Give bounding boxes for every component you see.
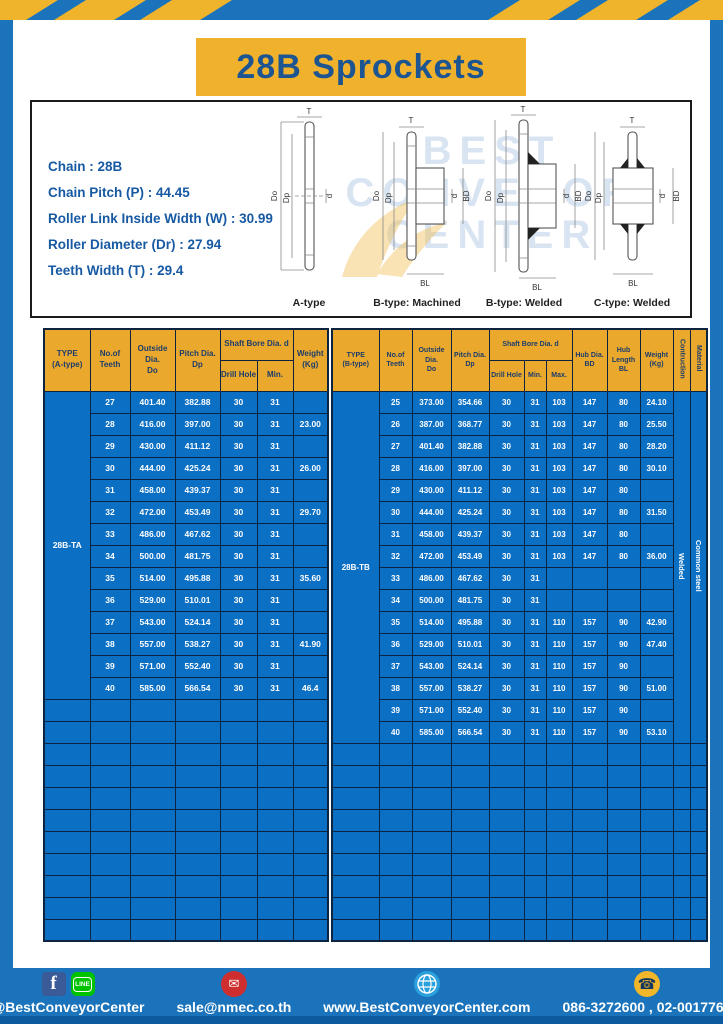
dim-dp: Dp [594,192,603,203]
cell: 30 [220,413,257,435]
dim-bd: BD [672,190,681,201]
cell: 28.20 [640,435,673,457]
empty-cell [640,765,673,787]
empty-cell [44,853,90,875]
empty-cell [332,787,379,809]
empty-cell [293,919,328,941]
cell: 557.00 [412,677,451,699]
empty-cell [379,765,412,787]
cell [293,545,328,567]
cell: 31 [257,655,293,677]
cell: 28 [90,413,130,435]
empty-cell [130,897,175,919]
empty-cell [293,765,328,787]
empty-cell [524,853,546,875]
cell: 26 [379,413,412,435]
empty-cell [44,919,90,941]
empty-cell [640,809,673,831]
cell: 30 [379,501,412,523]
empty-cell [607,743,640,765]
empty-cell [293,699,328,721]
dim-dp: Dp [496,192,505,203]
empty-cell [546,897,572,919]
cell: 585.00 [412,721,451,743]
cell: 439.37 [451,523,489,545]
cell: 157 [572,611,607,633]
cell: 53.10 [640,721,673,743]
page-title: 28B Sprockets [236,48,485,87]
cell: 411.12 [175,435,220,457]
dim-do: Do [372,190,381,201]
empty-cell [572,919,607,941]
col-header-material: Material [690,329,707,391]
empty-cell [524,787,546,809]
empty-cell [489,919,524,941]
cell [640,589,673,611]
cell: 411.12 [451,479,489,501]
social-handle: @BestConveyorCenter [0,999,144,1015]
empty-cell [44,743,90,765]
col-header-weight: Weight (Kg) [293,329,328,391]
cell: 557.00 [130,633,175,655]
table-b-header: TYPE (B-type) No.of Teeth Outside Dia. D… [332,329,707,391]
cell: 31 [524,523,546,545]
cell: 147 [572,435,607,457]
empty-cell [412,919,451,941]
col-header-teeth: No.of Teeth [90,329,130,391]
empty-cell [130,831,175,853]
empty-cell [524,897,546,919]
col-header-max: Max. [546,360,572,391]
col-header-pitch-dia: Pitch Dia. Dp [175,329,220,391]
empty-cell [607,787,640,809]
empty-cell [293,831,328,853]
empty-cell [257,699,293,721]
cell: 30 [90,457,130,479]
cell: 30 [489,633,524,655]
cell: 147 [572,479,607,501]
cell: 39 [90,655,130,677]
cell: 30 [220,479,257,501]
cell: 38 [90,633,130,655]
empty-cell [130,809,175,831]
empty-row [44,875,328,897]
empty-cell [293,853,328,875]
cell: 514.00 [412,611,451,633]
empty-cell [90,787,130,809]
cell: 538.27 [451,677,489,699]
empty-cell [546,809,572,831]
website-url: www.BestConveyorCenter.com [323,999,530,1015]
empty-row [44,765,328,787]
cell: 444.00 [130,457,175,479]
cell: 157 [572,699,607,721]
empty-cell [690,743,707,765]
cell: 34 [90,545,130,567]
empty-cell [451,919,489,941]
col-header-outside-dia: Outside Dia. Do [130,329,175,391]
cell: 30 [489,721,524,743]
table-row: 29430.00411.12303110314780 [332,479,707,501]
cell: 31 [90,479,130,501]
empty-cell [524,919,546,941]
cell [640,523,673,545]
cell: 430.00 [412,479,451,501]
cell: 571.00 [130,655,175,677]
spec-teeth-width: Teeth Width (T) : 29.4 [48,258,273,284]
cell: 31 [524,567,546,589]
page-content: 28B Sprockets BEST CONVEYOR CENTER Chain… [13,20,710,968]
empty-cell [524,809,546,831]
cell: 103 [546,545,572,567]
empty-cell [257,721,293,743]
cell: 103 [546,523,572,545]
cell: 40 [379,721,412,743]
cell [572,567,607,589]
empty-cell [690,875,707,897]
empty-cell [175,875,220,897]
cell: 147 [572,457,607,479]
cell [293,611,328,633]
empty-cell [175,743,220,765]
empty-row [44,743,328,765]
empty-cell [257,897,293,919]
cell: 31 [524,611,546,633]
email-address: sale@nmec.co.th [176,999,291,1015]
empty-cell [379,875,412,897]
footer-bottom-strip [0,1016,723,1024]
empty-cell [489,897,524,919]
cell: 552.40 [451,699,489,721]
empty-cell [412,831,451,853]
empty-cell [332,765,379,787]
dim-dp: Dp [384,192,393,203]
cell: 453.49 [175,501,220,523]
spec-drawing-box: BEST CONVEYOR CENTER Chain : 28B Chain P… [30,100,692,318]
cell: 23.00 [293,413,328,435]
empty-cell [379,853,412,875]
dim-d: d [562,194,571,198]
drawing-a-type: T Do Dp d A-type [270,107,334,309]
empty-cell [293,809,328,831]
empty-cell [332,853,379,875]
cell: 529.00 [412,633,451,655]
cell: 495.88 [451,611,489,633]
caption-a-type: A-type [293,297,326,309]
cell: 80 [607,501,640,523]
cell: 33 [379,567,412,589]
empty-cell [690,787,707,809]
dim-do: Do [484,190,493,201]
cell: 510.01 [451,633,489,655]
empty-cell [332,897,379,919]
cell: 458.00 [130,479,175,501]
cell [640,655,673,677]
table-row: 31458.00439.37303110314780 [332,523,707,545]
table-row: 39571.00552.40303111015790 [332,699,707,721]
cell: 80 [607,413,640,435]
empty-cell [489,809,524,831]
empty-cell [572,743,607,765]
cell: 31 [524,721,546,743]
empty-cell [44,787,90,809]
cell: 90 [607,677,640,699]
empty-cell [451,853,489,875]
cell [546,567,572,589]
cell [293,391,328,413]
cell: 397.00 [175,413,220,435]
empty-cell [673,875,690,897]
footer-phone: ☎ 086-3272600 , 02-0017766 [557,969,723,1015]
empty-cell [690,765,707,787]
cell: 30 [220,545,257,567]
cell [640,479,673,501]
dim-t: T [630,116,635,125]
empty-cell [690,853,707,875]
cell: 110 [546,611,572,633]
cell: 543.00 [130,611,175,633]
empty-cell [293,897,328,919]
empty-cell [607,875,640,897]
empty-cell [90,809,130,831]
cell: 157 [572,677,607,699]
col-header-shaft-bore: Shaft Bore Dia. d [220,329,293,360]
sprocket-drawings: T Do Dp d A-type T [247,106,687,312]
empty-cell [130,765,175,787]
empty-cell [673,897,690,919]
empty-cell [90,699,130,721]
empty-cell [220,787,257,809]
empty-cell [412,743,451,765]
empty-cell [607,853,640,875]
cell [640,567,673,589]
facebook-icon: f [42,972,66,996]
empty-cell [379,787,412,809]
empty-cell [640,831,673,853]
cell: 29.70 [293,501,328,523]
cell [640,699,673,721]
table-row: 28416.00397.0030311031478030.10 [332,457,707,479]
col-header-construction: Contruction [673,329,690,391]
cell: 30 [489,501,524,523]
cell: 458.00 [412,523,451,545]
cell: 157 [572,721,607,743]
cell: 585.00 [130,677,175,699]
col-header-teeth: No.of Teeth [379,329,412,391]
empty-cell [130,853,175,875]
empty-cell [451,743,489,765]
empty-cell [379,831,412,853]
table-row: 30444.00425.2430311031478031.50 [332,501,707,523]
empty-cell [412,853,451,875]
table-row: 35514.00495.8830311101579042.90 [332,611,707,633]
cell: 37 [379,655,412,677]
cell: 147 [572,391,607,413]
cell: 543.00 [412,655,451,677]
cell: 90 [607,699,640,721]
cell: 481.75 [175,545,220,567]
table-row: 37543.00524.14303111015790 [332,655,707,677]
cell: 31 [524,435,546,457]
cell: 35 [90,567,130,589]
table-b-type: TYPE (B-type) No.of Teeth Outside Dia. D… [331,328,708,942]
empty-cell [332,875,379,897]
drawing-c-type-welded: T Do Dp d BD BL C-type: Welded [584,116,681,309]
cell: 31.50 [640,501,673,523]
table-row: 28B-TB25373.00354.6630311031478024.10Wel… [332,391,707,413]
empty-cell [546,853,572,875]
col-header-min: Min. [524,360,546,391]
empty-cell [572,875,607,897]
table-a-header: TYPE (A-type) No.of Teeth Outside Dia. D… [44,329,328,391]
empty-row [44,853,328,875]
cell: 24.10 [640,391,673,413]
table-row: 26387.00368.7730311031478025.50 [332,413,707,435]
col-header-pitch-dia: Pitch Dia. Dp [451,329,489,391]
empty-cell [90,721,130,743]
empty-cell [640,897,673,919]
empty-cell [489,831,524,853]
cell: 31 [257,413,293,435]
drawing-b-type-machined: T Do Dp d BD BL B-type: Machined [372,116,471,309]
cell: 147 [572,523,607,545]
cell: 25 [379,391,412,413]
cell: 31 [257,677,293,699]
cell: 30 [489,435,524,457]
cell: 30 [489,567,524,589]
empty-cell [332,919,379,941]
cell: 31 [524,677,546,699]
cell: 472.00 [130,501,175,523]
empty-cell [130,875,175,897]
dim-d: d [450,194,459,198]
cell: 373.00 [412,391,451,413]
phone-icon: ☎ [634,971,660,997]
empty-cell [524,743,546,765]
empty-row [332,919,707,941]
cell: 467.62 [451,567,489,589]
empty-cell [546,765,572,787]
line-icon: LINE [71,972,95,996]
cell: 103 [546,501,572,523]
empty-cell [293,721,328,743]
cell [293,479,328,501]
empty-row [332,787,707,809]
cell: 30 [220,611,257,633]
cell: 147 [572,413,607,435]
cell: 80 [607,435,640,457]
cell: 495.88 [175,567,220,589]
empty-cell [175,919,220,941]
col-header-type: TYPE (B-type) [332,329,379,391]
cell: 80 [607,391,640,413]
empty-cell [524,765,546,787]
construction-cell: Welded [673,391,690,743]
empty-cell [640,919,673,941]
empty-cell [412,897,451,919]
cell: 566.54 [451,721,489,743]
cell: 453.49 [451,545,489,567]
cell: 571.00 [412,699,451,721]
cell: 529.00 [130,589,175,611]
cell: 33 [90,523,130,545]
empty-cell [90,875,130,897]
empty-cell [412,765,451,787]
empty-cell [412,875,451,897]
empty-cell [546,831,572,853]
empty-cell [640,875,673,897]
empty-cell [90,919,130,941]
cell: 30 [220,633,257,655]
cell: 425.24 [451,501,489,523]
cell: 80 [607,545,640,567]
cell: 34 [379,589,412,611]
cell [572,589,607,611]
empty-cell [130,721,175,743]
empty-row [332,809,707,831]
footer: f LINE @BestConveyorCenter ✉ sale@nmec.c… [0,968,723,1024]
cell: 30 [489,523,524,545]
empty-cell [257,787,293,809]
dim-bl: BL [532,283,542,292]
cell: 27 [379,435,412,457]
cell [546,589,572,611]
cell: 30 [489,457,524,479]
chain-specs: Chain : 28B Chain Pitch (P) : 44.45 Roll… [48,154,273,284]
cell: 30 [489,589,524,611]
cell: 416.00 [412,457,451,479]
cell: 103 [546,479,572,501]
cell: 35.60 [293,567,328,589]
cell: 31 [257,523,293,545]
cell: 90 [607,655,640,677]
empty-cell [130,743,175,765]
cell: 103 [546,391,572,413]
table-b-body: 28B-TB25373.00354.6630311031478024.10Wel… [332,391,707,941]
empty-row [332,743,707,765]
cell: 30 [220,655,257,677]
cell [293,655,328,677]
empty-cell [220,897,257,919]
empty-cell [379,897,412,919]
empty-cell [524,831,546,853]
empty-cell [451,787,489,809]
empty-cell [640,853,673,875]
cell: 36 [90,589,130,611]
cell: 41.90 [293,633,328,655]
cell: 30 [220,501,257,523]
cell: 30 [220,589,257,611]
email-icon: ✉ [221,971,247,997]
empty-cell [451,809,489,831]
table-row: 36529.00510.0130311101579047.40 [332,633,707,655]
empty-cell [451,831,489,853]
cell: 354.66 [451,391,489,413]
cell: 32 [379,545,412,567]
cell: 538.27 [175,633,220,655]
caption-b-type-machined: B-type: Machined [373,297,461,309]
empty-cell [90,897,130,919]
dim-bl: BL [628,279,638,288]
dim-dp: Dp [282,192,291,203]
globe-icon [413,970,441,998]
empty-cell [489,787,524,809]
cell: 110 [546,655,572,677]
empty-cell [257,919,293,941]
dim-t: T [409,116,414,125]
col-header-hub-dia: Hub Dia. BD [572,329,607,391]
cell: 397.00 [451,457,489,479]
